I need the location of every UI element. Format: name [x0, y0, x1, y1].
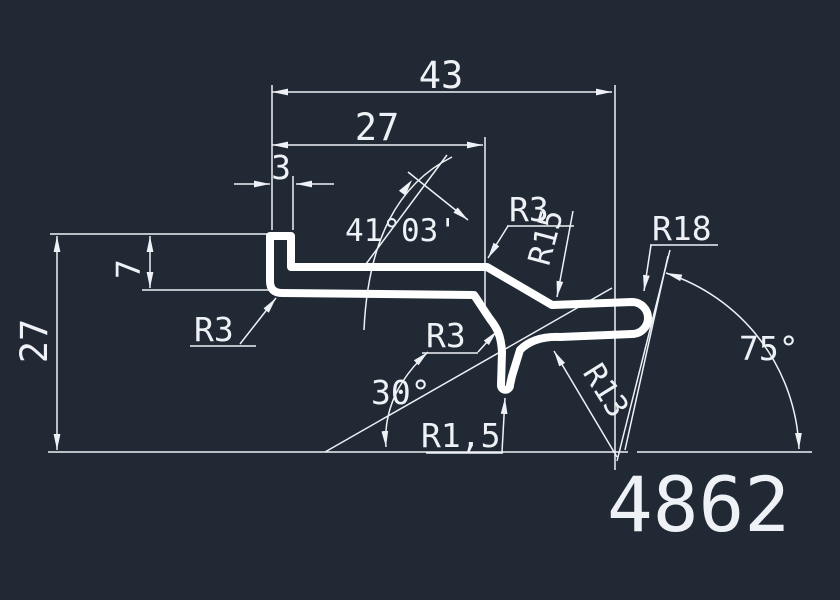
leader-r3-left — [240, 298, 276, 344]
dim-text-7: 7 — [109, 259, 148, 279]
angle-text-30: 30° — [371, 373, 431, 412]
dim-text-27-top: 27 — [355, 106, 400, 149]
angle-41-arrow-1 — [399, 180, 412, 196]
leader-r1-5 — [502, 398, 505, 452]
leader-r3-lower — [478, 331, 497, 352]
leader-r3-upper — [488, 226, 508, 258]
radius-text-r13: R13 — [575, 357, 635, 424]
dim-text-43: 43 — [419, 54, 464, 97]
label-layer: 43 27 3 7 27 41°03' R3 R15 R18 75° R13 3… — [13, 54, 799, 549]
angle-text-75: 75° — [739, 329, 799, 368]
slant-extension-inner — [625, 256, 668, 450]
angle-text-41: 41°03' — [345, 213, 457, 249]
dim-text-27-left: 27 — [13, 319, 56, 364]
radius-text-r1-5: R1,5 — [421, 416, 500, 455]
radius-text-r3-left: R3 — [194, 310, 234, 349]
cad-canvas: 43 27 3 7 27 41°03' R3 R15 R18 75° R13 3… — [0, 0, 840, 600]
radius-text-r3-lower: R3 — [426, 316, 466, 355]
angle-41-ray-1 — [363, 155, 447, 268]
part-number-label: 4862 — [607, 460, 790, 549]
dim-text-3: 3 — [271, 148, 291, 187]
dimension-layer — [48, 85, 812, 470]
radius-text-r18: R18 — [652, 209, 712, 248]
leader-r18 — [644, 245, 651, 291]
